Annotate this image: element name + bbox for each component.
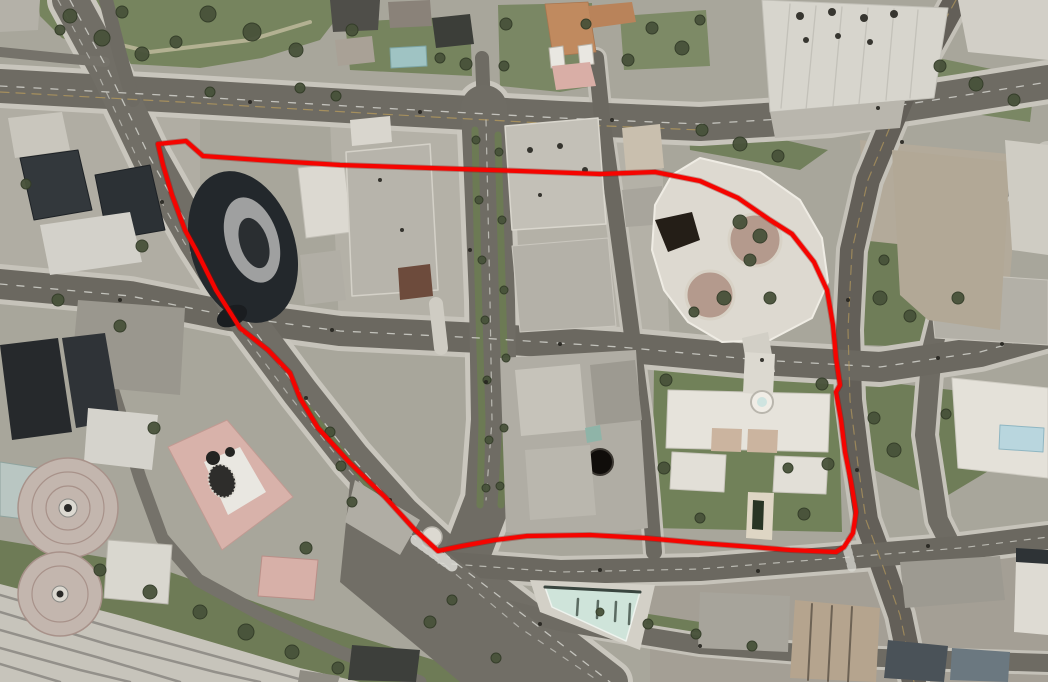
map-base-layer	[0, 0, 1048, 682]
tree	[660, 374, 672, 386]
tree	[816, 378, 828, 390]
map-detail-dot	[330, 328, 334, 332]
bldg-br-slate	[884, 640, 948, 682]
tree	[148, 422, 160, 434]
triangle-slit-1	[577, 599, 578, 615]
tree	[447, 595, 457, 605]
tree	[744, 254, 756, 266]
church-tower-left	[549, 46, 565, 68]
tree	[193, 605, 207, 619]
tree	[658, 462, 670, 474]
tree	[347, 497, 357, 507]
palace-dome-center	[757, 397, 767, 407]
tree	[460, 58, 472, 70]
tree	[500, 286, 508, 294]
tree	[482, 484, 490, 492]
tree	[300, 542, 312, 554]
palace-wing-sw	[670, 452, 726, 492]
map-detail-dot	[855, 468, 859, 472]
tree	[500, 18, 512, 30]
map-detail-dot	[538, 193, 542, 197]
tree	[496, 482, 504, 490]
tree	[696, 124, 708, 136]
bldg-br-striped	[790, 600, 880, 682]
bldg-central-west-small	[350, 116, 392, 146]
pink-house-small	[258, 556, 318, 600]
bldg-br-gray	[900, 556, 1005, 608]
bldg-podium-topleft	[8, 112, 70, 158]
tree	[753, 229, 767, 243]
tree	[646, 22, 658, 34]
map-detail-dot	[610, 118, 614, 122]
map-detail-dot	[756, 569, 760, 573]
tree	[934, 60, 946, 72]
map-detail-dot	[860, 14, 868, 22]
tree	[747, 641, 757, 651]
palace-court-2	[747, 429, 778, 453]
tree	[346, 24, 358, 36]
map-detail-dot	[876, 106, 880, 110]
palace-tower-north	[743, 352, 775, 395]
map-detail-dot	[558, 342, 562, 346]
triangle-slit-4	[629, 604, 630, 624]
tree	[695, 513, 705, 523]
tree	[332, 662, 344, 674]
tree	[481, 316, 489, 324]
map-detail-dot	[698, 644, 702, 648]
tree	[717, 291, 731, 305]
parking-topright	[892, 150, 1010, 330]
tree	[170, 36, 182, 48]
bldg-tan-ne	[622, 124, 664, 172]
bldg-br-bluegray	[950, 648, 1010, 682]
map-detail-dot	[304, 396, 308, 400]
triangle-slit-3	[615, 602, 616, 621]
map-detail-dot	[926, 544, 930, 548]
map-detail-dot	[484, 380, 488, 384]
bldg-top-strip-2	[388, 0, 432, 28]
tree	[289, 43, 303, 57]
tree	[783, 463, 793, 473]
map-detail-dot	[1000, 342, 1004, 346]
bldg-brown-roof	[398, 264, 433, 300]
tree	[887, 443, 901, 457]
tree	[695, 15, 705, 25]
tree	[55, 25, 65, 35]
tree	[114, 320, 126, 332]
map-detail-dot	[900, 140, 904, 144]
bldg-top-strip-3	[432, 14, 474, 48]
pink-mansion-blob-1	[206, 451, 220, 465]
map-detail-dot	[118, 298, 122, 302]
palace-court-1	[711, 428, 742, 452]
map-viewport[interactable]	[0, 0, 1048, 682]
bldg-central-south	[512, 238, 616, 332]
map-detail-dot	[796, 12, 804, 20]
tree	[691, 629, 701, 639]
tree	[94, 30, 110, 46]
bldg-br-white-cap	[1016, 548, 1048, 564]
bldg-between-plazas	[104, 540, 172, 604]
map-detail-dot	[400, 228, 404, 232]
tree	[205, 87, 215, 97]
tree	[581, 19, 591, 29]
plaza-fountain-1c	[64, 504, 72, 512]
bldg-white-low-left	[84, 408, 158, 470]
bldg-cs-1	[515, 364, 586, 436]
map-detail-dot	[468, 248, 472, 252]
tree	[295, 83, 305, 93]
tree	[643, 619, 653, 629]
map-detail-dot	[828, 8, 836, 16]
tree	[21, 179, 31, 189]
tree	[94, 564, 106, 576]
map-detail-dot	[760, 358, 764, 362]
tree	[475, 196, 483, 204]
pool-right	[999, 425, 1044, 452]
map-detail-dot	[867, 39, 873, 45]
tree	[764, 292, 776, 304]
tree	[136, 240, 148, 252]
bldg-right-edge	[1005, 140, 1048, 255]
tree	[116, 6, 128, 18]
church-entrance-apron	[552, 62, 596, 90]
palace-wing-se	[773, 456, 828, 494]
tree	[485, 436, 493, 444]
tree	[622, 54, 634, 66]
tree	[499, 61, 509, 71]
tree	[143, 585, 157, 599]
tree	[331, 91, 341, 101]
tree	[879, 255, 889, 265]
tree	[500, 424, 508, 432]
plaza-fountain-2c	[57, 591, 64, 598]
tree	[868, 412, 880, 424]
tree	[200, 6, 216, 22]
bldg-white-grid	[298, 163, 352, 238]
tree	[491, 653, 501, 663]
bldg-cs-teal	[585, 425, 602, 443]
ped-bridge-mid-avenue	[436, 304, 441, 348]
bldg-dark-bottom-center	[348, 645, 420, 682]
tree	[941, 409, 951, 419]
aerial-map[interactable]	[0, 0, 1048, 682]
tree	[733, 137, 747, 151]
map-detail-dot	[803, 37, 809, 43]
tree	[495, 148, 503, 156]
tree	[52, 294, 64, 306]
map-detail-dot	[846, 298, 850, 302]
tree	[904, 310, 916, 322]
map-detail-dot	[557, 143, 563, 149]
palace-pool	[752, 500, 764, 530]
map-detail-dot	[598, 568, 602, 572]
map-detail-dot	[248, 100, 252, 104]
tree	[952, 292, 964, 304]
park-pool	[390, 46, 427, 68]
tree	[478, 256, 486, 264]
tree	[969, 77, 983, 91]
bldg-topleft-corner	[0, 0, 40, 32]
bldg-top-strip-4	[335, 36, 375, 66]
tree	[285, 645, 299, 659]
tree	[1008, 94, 1020, 106]
bldg-br-1	[698, 592, 790, 652]
bldg-cs-3	[525, 445, 596, 520]
tree	[435, 53, 445, 63]
tree	[733, 215, 747, 229]
tree	[798, 508, 810, 520]
tree	[238, 624, 254, 640]
tree	[772, 150, 784, 162]
tree	[502, 354, 510, 362]
pink-mansion-blob-2	[225, 447, 235, 457]
tree	[596, 608, 604, 616]
map-detail-dot	[160, 200, 164, 204]
tree	[873, 291, 887, 305]
tree	[135, 47, 149, 61]
map-detail-dot	[418, 110, 422, 114]
warehouse	[762, 0, 948, 112]
tree	[822, 458, 834, 470]
map-detail-dot	[835, 33, 841, 39]
map-detail-dot	[527, 147, 533, 153]
bldg-topright-corner	[958, 0, 1048, 60]
tree	[675, 41, 689, 55]
tree	[498, 216, 506, 224]
map-detail-dot	[936, 356, 940, 360]
bldg-gray-small-1	[300, 250, 346, 305]
tree	[424, 616, 436, 628]
tree	[243, 23, 261, 41]
bldg-cs-2	[590, 360, 642, 425]
map-detail-dot	[890, 10, 898, 18]
map-detail-dot	[538, 622, 542, 626]
map-detail-dot	[378, 178, 382, 182]
tree	[472, 136, 480, 144]
tree	[689, 307, 699, 317]
tree	[63, 9, 77, 23]
tree	[336, 461, 346, 471]
bldg-br-white	[1014, 560, 1048, 635]
